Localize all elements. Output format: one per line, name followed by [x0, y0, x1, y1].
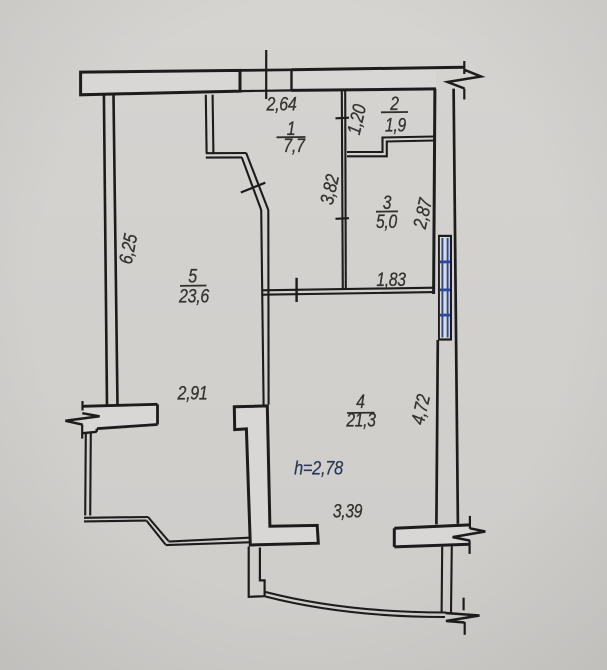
svg-text:1,9: 1,9 [385, 114, 406, 136]
svg-text:2,91: 2,91 [177, 382, 208, 404]
svg-text:5,0: 5,0 [376, 211, 397, 233]
svg-text:2,64: 2,64 [266, 93, 297, 115]
svg-text:3,39: 3,39 [333, 500, 363, 522]
svg-text:23,6: 23,6 [178, 285, 209, 307]
svg-text:1,83: 1,83 [376, 269, 406, 291]
svg-text:5: 5 [188, 265, 197, 287]
svg-text:2: 2 [389, 93, 399, 115]
svg-text:h=2,78: h=2,78 [294, 457, 343, 478]
